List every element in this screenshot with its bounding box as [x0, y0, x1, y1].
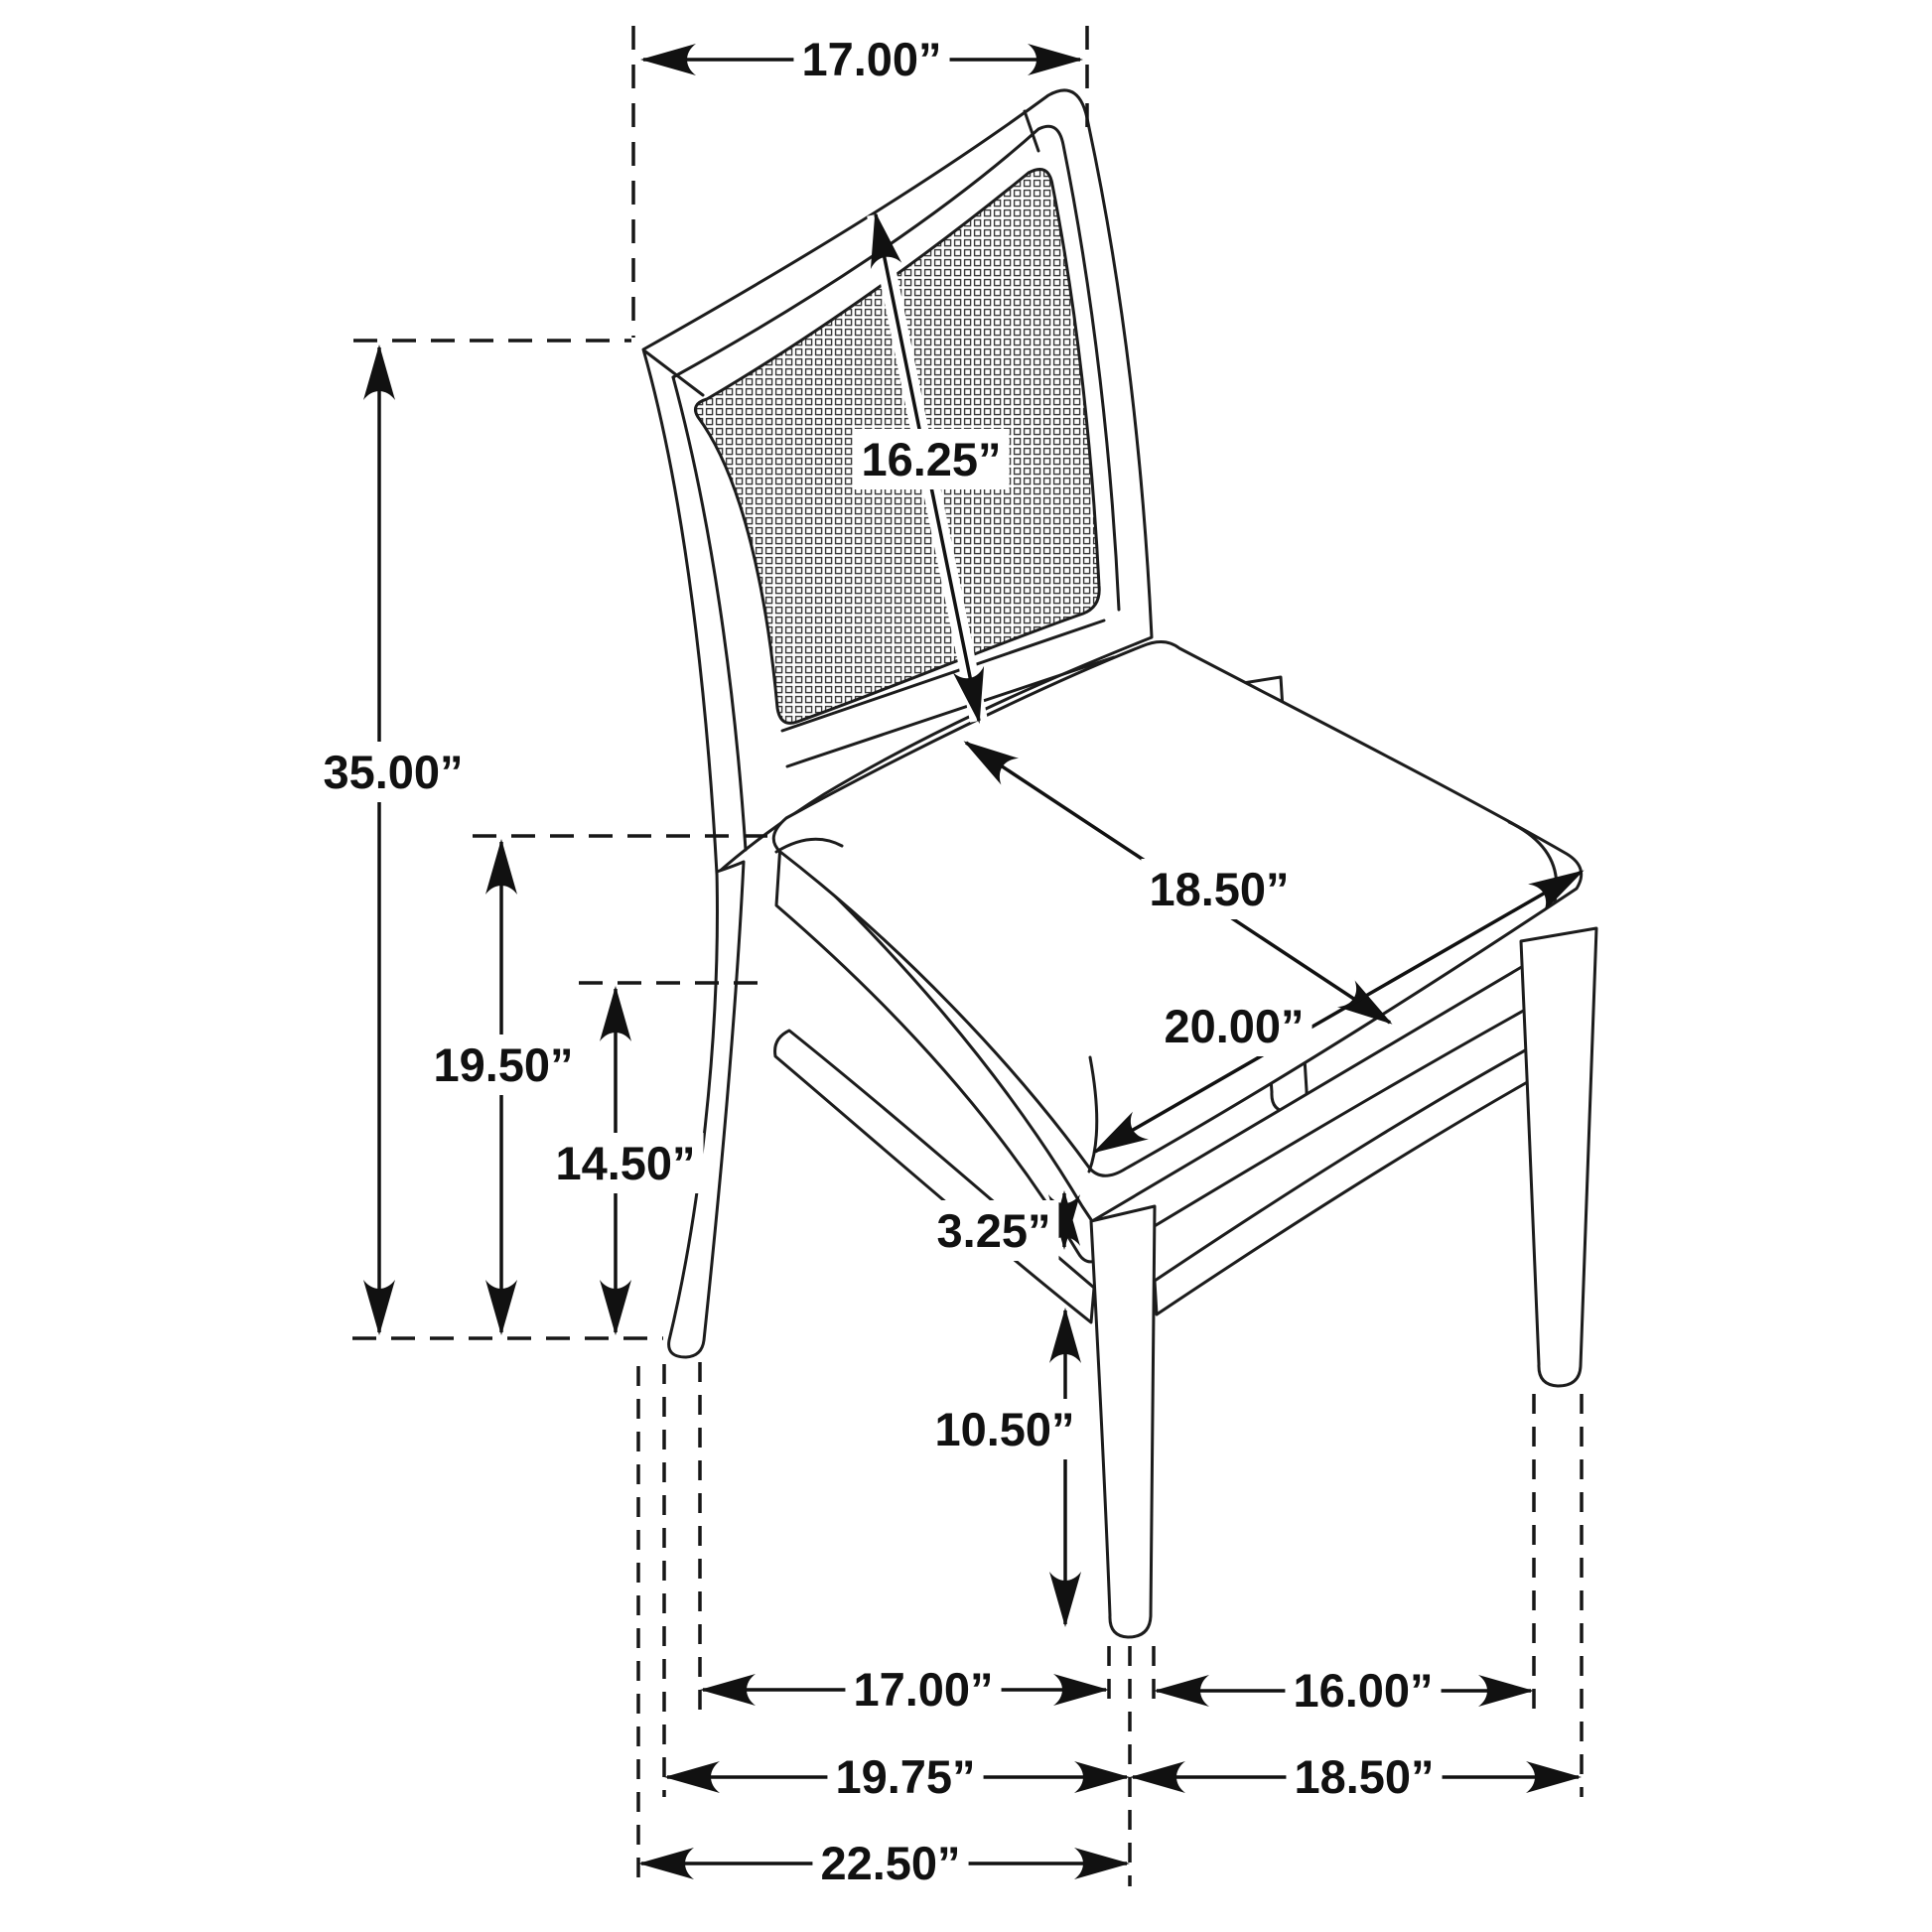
dim-label-seat-width: 20.00” — [1164, 1000, 1304, 1052]
dim-label-seat-height: 19.50” — [433, 1038, 573, 1091]
dim-apron-thickness: 3.25” — [929, 1193, 1064, 1261]
dim-label-seat-depth: 18.50” — [1149, 863, 1289, 915]
dim-side-leg-spacing: 16.00” — [1157, 1660, 1531, 1721]
dim-label-front-leg-spacing: 17.00” — [853, 1663, 993, 1716]
dim-front-width-overall: 19.75” — [667, 1746, 1127, 1807]
dim-label-apron-thickness: 3.25” — [937, 1204, 1051, 1257]
dim-label-back-width: 17.00” — [801, 33, 941, 85]
dim-seat-height: 19.50” — [425, 842, 581, 1332]
dim-overall-height: 35.00” — [315, 347, 471, 1332]
dim-label-apron-bottom-height: 14.50” — [555, 1137, 695, 1189]
dim-side-depth-overall: 18.50” — [1133, 1746, 1579, 1807]
dim-label-overall-depth: 22.50” — [820, 1837, 960, 1889]
dim-label-back-panel-diagonal: 16.25” — [861, 433, 1001, 485]
chair-dimension-diagram: 17.00” 35.00” 19.50” 14.50” 16.25” 18.50… — [0, 0, 1932, 1932]
dim-label-side-depth-overall: 18.50” — [1294, 1750, 1434, 1803]
dim-front-leg-spacing: 17.00” — [703, 1659, 1106, 1720]
diagram-canvas: 17.00” 35.00” 19.50” 14.50” 16.25” 18.50… — [0, 0, 1932, 1932]
dim-overall-depth: 22.50” — [641, 1833, 1127, 1893]
chair-drawing — [643, 90, 1596, 1637]
dim-back-width: 17.00” — [643, 29, 1080, 89]
rear-left-leg — [669, 862, 744, 1357]
dim-stretcher-clearance: 10.50” — [926, 1311, 1082, 1624]
dim-label-overall-height: 35.00” — [323, 746, 463, 798]
dim-label-side-leg-spacing: 16.00” — [1293, 1664, 1433, 1717]
front-right-leg — [1521, 928, 1596, 1386]
dim-label-stretcher-clearance: 10.50” — [934, 1403, 1074, 1455]
dim-label-front-width-overall: 19.75” — [835, 1750, 975, 1803]
front-leg — [1091, 1206, 1155, 1637]
